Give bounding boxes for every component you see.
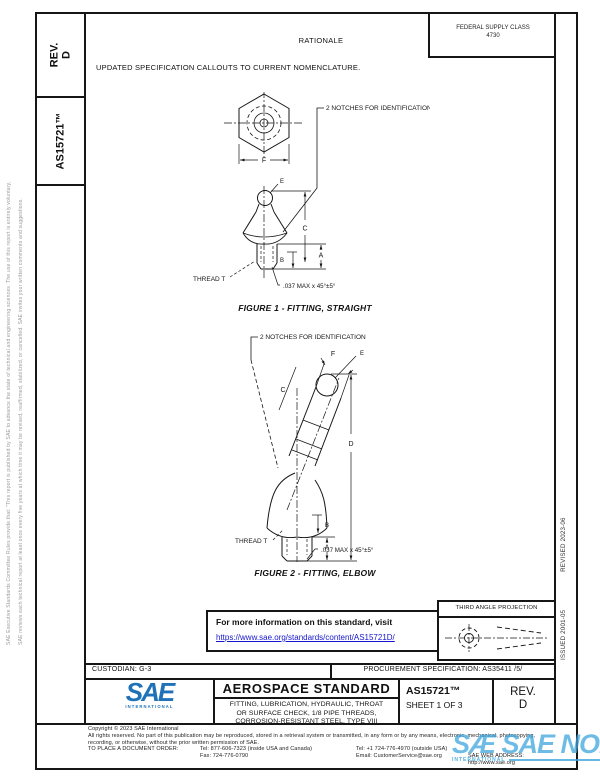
fig1-dim-a: A [319,253,324,260]
fig1-dim-e: E [280,179,284,185]
document-page: SAE Executive Standards Committee Rules … [0,0,600,776]
document-number-cell: AS15721™ SHEET 1 OF 3 [398,679,492,723]
document-number: AS15721™ [398,679,492,697]
more-info-text: For more information on this standard, v… [216,617,438,627]
projection-label: THIRD ANGLE PROJECTION [439,602,554,618]
fig2-dim-f: F [331,351,335,358]
fig1-chamfer-note: .037 MAX x 45°±5° [283,283,336,290]
web-address: SAE WEB ADDRESS: http://www.sae.org [468,753,568,767]
rev-box-value: D [60,43,72,68]
issued-date: ISSUED 2001-05 [560,610,567,660]
revision-label: REV. [492,686,554,699]
fig2-notches-callout: 2 NOTCHES FOR IDENTIFICATION [260,334,366,341]
rev-box: REV. D [35,12,86,98]
custodian-cell: CUSTODIAN: G-3 [86,663,330,678]
fig2-dim-c: C [280,387,285,394]
fig2-dim-d: D [348,441,353,448]
doc-number-box: AS15721™ [35,96,86,186]
copyright-line: Copyright © 2023 SAE International [88,726,568,733]
fig2-chamfer-note: .037 MAX x 45°±5° [321,547,374,554]
fig1-notches-callout: 2 NOTCHES FOR IDENTIFICATION [326,105,430,112]
sheet-number: SHEET 1 OF 3 [398,697,492,710]
figure2-drawing: 2 NOTCHES FOR IDENTIFICATION F C E D A B… [175,330,530,566]
order-label: TO PLACE A DOCUMENT ORDER: [88,746,178,753]
fig1-dim-b: B [280,258,284,264]
sae-logo-cell: SAE INTERNATIONAL [86,680,213,723]
third-angle-projection-box: THIRD ANGLE PROJECTION [437,600,556,661]
sae-logo-subtext: INTERNATIONAL [86,704,213,709]
fig2-dim-e: E [360,351,364,357]
left-margin-disclaimer-outer: SAE Executive Standards Committee Rules … [6,180,14,645]
left-margin-disclaimer-inner: SAE reviews each technical report at lea… [18,180,26,645]
fsc-label: FEDERAL SUPPLY CLASS [430,24,556,32]
rev-box-label: REV. [48,43,60,68]
fax-number: Fax: 724-776-0790 [200,753,248,760]
doc-number-vertical: AS15721™ [55,113,67,170]
rights-line1: All rights reserved. No part of this pub… [88,733,568,740]
rationale-heading: RATIONALE [86,36,556,45]
left-column-divider [84,12,86,723]
revision-cell: REV. D [492,679,554,723]
rights-line2: recording, or otherwise, without the pri… [88,740,568,747]
email-address: Email: CustomerService@sae.org [356,753,442,760]
federal-supply-class-box: FEDERAL SUPPLY CLASS 4730 [428,12,556,58]
figure1-caption: FIGURE 1 - FITTING, STRAIGHT [180,303,430,313]
figure1-drawing: 2 NOTCHES FOR IDENTIFICATION E F C A B T… [180,92,430,300]
rationale-text: UPDATED SPECIFICATION CALLOUTS TO CURREN… [96,63,536,72]
fig2-thread-callout: THREAD T [235,538,267,545]
revision-value: D [492,699,554,712]
standard-type: AEROSPACE STANDARD [215,679,398,699]
issued-revised-vertical: ISSUED 2001-05 REVISED 2023-06 [560,480,572,660]
fig1-dim-f: F [262,158,266,165]
projection-symbol-icon [439,618,554,658]
standard-title-line2: OR SURFACE CHECK, 1/8 PIPE THREADS, [215,710,398,719]
copyright-block: Copyright © 2023 SAE International All r… [88,726,568,760]
sae-logo: SAE [86,680,213,704]
fig2-dim-b: B [325,523,329,529]
tel-international: Tel: +1 724-776-4970 (outside USA) [356,746,447,753]
fig1-thread-callout: THREAD T [193,276,225,283]
more-info-box: For more information on this standard, v… [206,610,448,652]
figure2-caption: FIGURE 2 - FITTING, ELBOW [155,568,475,578]
revised-date: REVISED 2023-06 [560,517,567,572]
standard-title-line1: FITTING, LUBRICATION, HYDRAULIC, THROAT [215,701,398,710]
tel-domestic: Tel: 877-606-7323 (inside USA and Canada… [200,746,312,753]
procurement-cell: PROCUREMENT SPECIFICATION: AS35411 /5/ [332,663,554,678]
standard-title-cell: AEROSPACE STANDARD FITTING, LUBRICATION,… [215,679,398,723]
standard-link[interactable]: https://www.sae.org/standards/content/AS… [216,633,395,642]
fig1-dim-c: C [302,226,307,233]
